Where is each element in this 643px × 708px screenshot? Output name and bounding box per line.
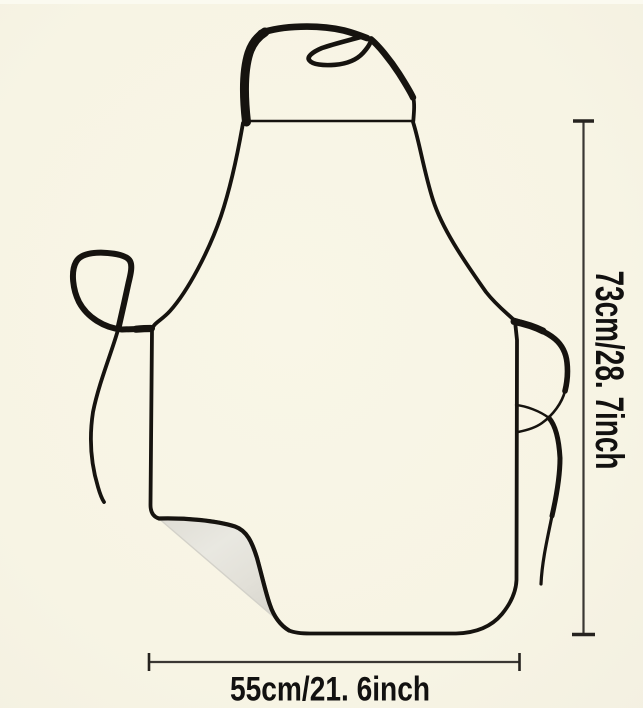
- svg-text:55cm/21. 6inch: 55cm/21. 6inch: [230, 671, 430, 708]
- svg-text:73cm/28. 7inch: 73cm/28. 7inch: [587, 271, 631, 470]
